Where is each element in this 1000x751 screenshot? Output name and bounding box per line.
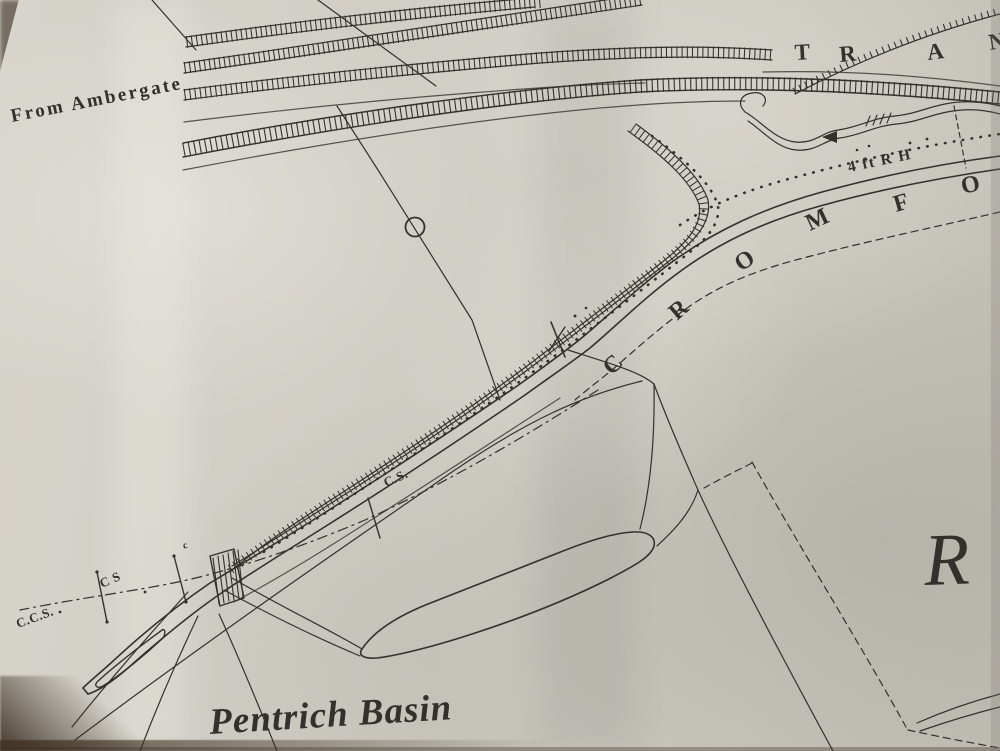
tramroad-embankment [793,10,1000,94]
canal-letter: O [959,170,983,200]
small-c-mark: c [181,540,189,552]
cromford-canal [83,134,1000,694]
partial-big-letter-r: R [922,518,971,602]
bottom-right-road [917,694,1000,731]
from-ambergate-label: From Ambergate [9,73,184,127]
tramroad-letter: T [794,39,811,65]
map-labels: From Ambergate T R A N 4 ft R H C R O M … [9,28,1000,743]
photo-edge-line-bottom [0,747,1000,751]
tramroad-letter: A [926,38,946,65]
stream-hook [741,93,766,112]
historic-canal-map: From Ambergate T R A N 4 ft R H C R O M … [0,0,1000,751]
towpath-dashed [575,212,1000,400]
map-drawing: From Ambergate T R A N 4 ft R H C R O M … [0,0,1000,751]
siding-connector-line [152,0,196,50]
corridor-dot-row [262,136,718,553]
canal-letter: R [664,294,695,325]
pond-loop [361,532,655,658]
pentrich-basin-label: Pentrich Basin [207,687,453,743]
cross-section-label-1: C.S. [381,466,410,490]
tramroad-letter: R [838,41,857,67]
photo-edge-shadow-right [991,0,1000,751]
parcel-boundary-dashed [704,462,1000,748]
towpath-dot-row [680,134,1000,225]
canal-letter: F [890,189,911,218]
section-tick [174,556,186,602]
boundary-circle-marker [406,218,425,237]
dashed-boundary-short [954,106,966,168]
railway-sidings [152,0,772,122]
canal-letter: M [802,203,834,236]
section-tick [368,498,380,538]
canal-letter: C [598,350,629,381]
cross-section-label-2: C S [97,568,123,590]
